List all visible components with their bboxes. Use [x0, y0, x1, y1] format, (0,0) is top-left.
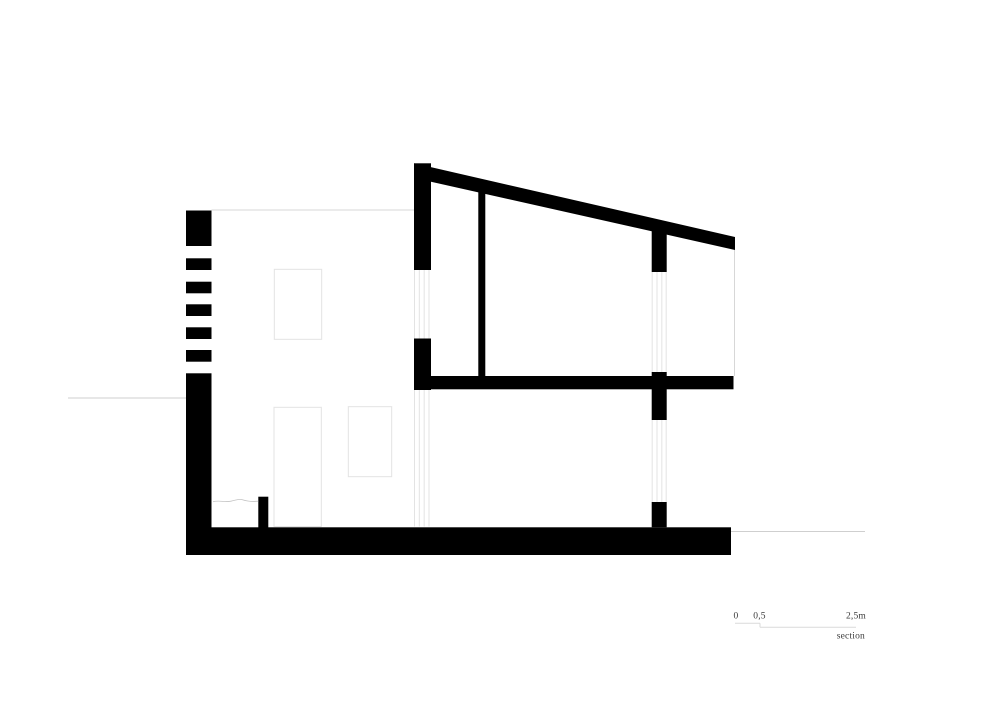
right-wall-base [652, 502, 667, 527]
floor-curb [258, 497, 268, 528]
window-elevation-lower [348, 407, 391, 477]
roof-slab [414, 163, 735, 250]
left-wall-hatch-stripe [186, 282, 212, 294]
scale-label-zero: 0 [734, 612, 739, 622]
section-drawing: 0 0,5 2,5m section [0, 0, 1000, 706]
ground-slab [186, 527, 731, 555]
upper-wall-left-top [414, 163, 431, 270]
scale-caption: section [837, 632, 865, 642]
interior-wall [478, 192, 485, 376]
scale-bar: 0 0,5 2,5m section [734, 612, 867, 642]
left-wall-hatch-stripe [186, 258, 212, 270]
left-wall-hatch-stripe [186, 304, 212, 316]
right-wall-mid [652, 372, 667, 420]
scale-label-half: 0,5 [753, 612, 766, 622]
architectural-section-sheet: 0 0,5 2,5m section [0, 0, 1000, 706]
left-wall-hatch-stripe [186, 350, 212, 362]
scale-label-end: 2,5m [846, 612, 866, 622]
right-wall-top [652, 231, 667, 272]
left-wall-cap [186, 211, 212, 247]
window-elevation-upper [274, 269, 321, 339]
section-geometry [68, 163, 865, 627]
terrain-break-line [213, 499, 258, 502]
door-elevation [274, 407, 321, 526]
mid-floor-slab [414, 376, 734, 389]
left-wall-hatch-stripe [186, 327, 212, 339]
